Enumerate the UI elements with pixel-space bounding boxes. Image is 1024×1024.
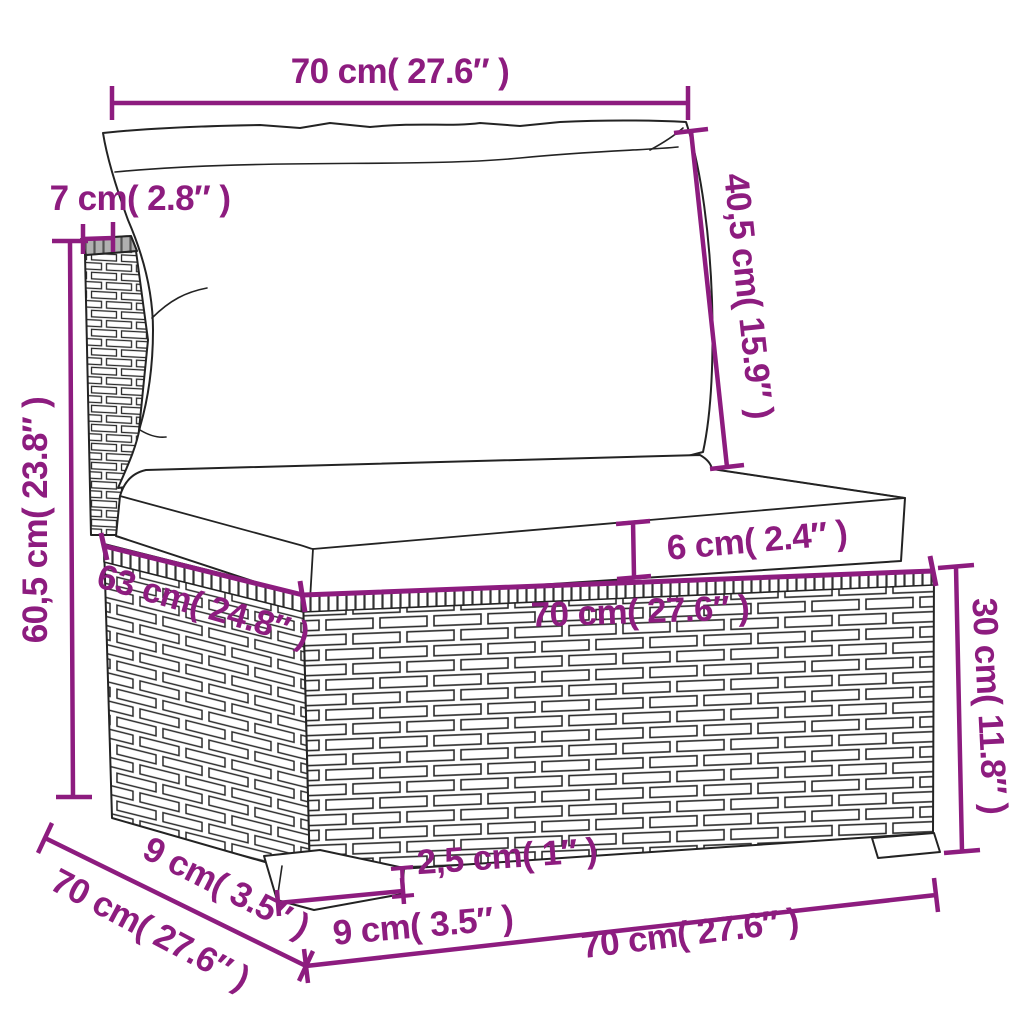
dim-label-seat-width: 70 cm( 27.6″ ) — [530, 588, 750, 636]
back-cushion-shape — [103, 121, 713, 489]
front-right-foot — [872, 833, 940, 858]
dim-label-back-width: 70 cm( 27.6″ ) — [291, 52, 510, 92]
dim-label-total-height: 60,5 cm( 23.8″ ) — [16, 397, 56, 643]
dimension-diagram: 70 cm( 27.6″ ) 7 cm( 2.8″ ) 40,5 cm( 15.… — [0, 0, 1024, 1024]
dim-label-back-thickness: 7 cm( 2.8″ ) — [50, 179, 231, 219]
